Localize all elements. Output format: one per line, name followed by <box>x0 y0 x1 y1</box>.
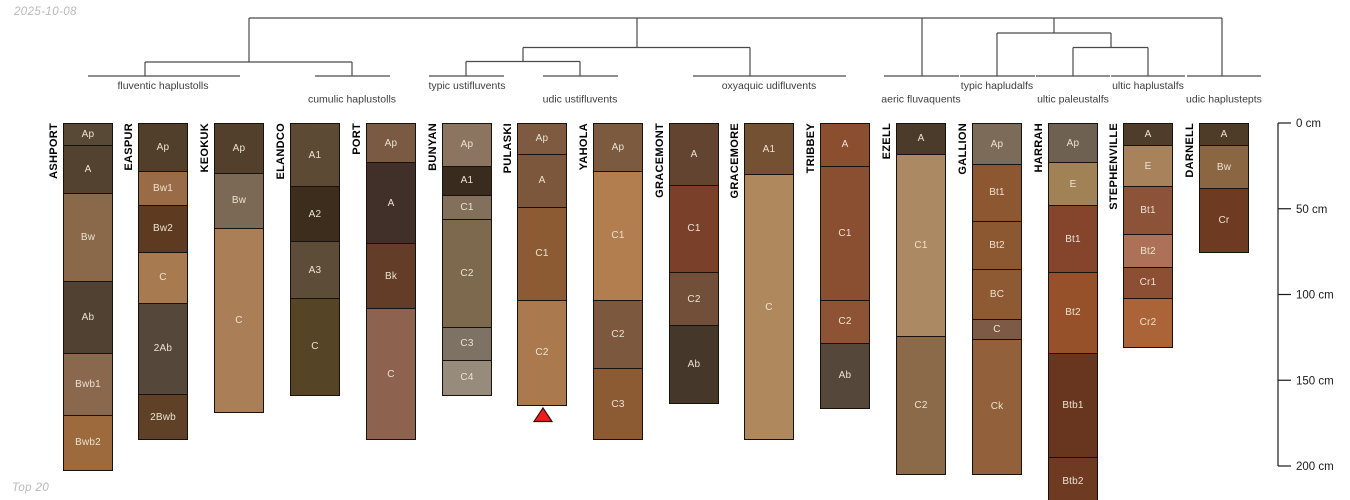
horizon-keokuk-bw: Bw <box>214 173 264 228</box>
series-label-stephenville: STEPHENVILLE <box>1107 123 1121 243</box>
horizon-gracemont-c1: C1 <box>669 185 719 272</box>
horizon-yahola-ap: Ap <box>593 123 643 171</box>
footer-label: Top 20 <box>12 482 49 494</box>
horizon-darnell-cr: Cr <box>1199 188 1249 253</box>
horizon-elandco-a2: A2 <box>290 186 340 241</box>
horizon-pulaski-c2: C2 <box>517 300 567 406</box>
horizon-harrah-bt2: Bt2 <box>1048 272 1098 353</box>
horizon-ashport-ab: Ab <box>63 281 113 353</box>
horizon-bunyan-c4: C4 <box>442 360 492 396</box>
horizon-tribbey-ab: Ab <box>820 343 870 410</box>
horizon-elandco-a3: A3 <box>290 241 340 298</box>
profile-column-keokuk: ApBwC <box>214 123 264 413</box>
profile-column-pulaski: ApAC1C2 <box>517 123 567 406</box>
horizon-harrah-e: E <box>1048 162 1098 205</box>
profile-column-gallion: ApBt1Bt2BCCCk <box>972 123 1022 475</box>
horizon-elandco-c: C <box>290 298 340 396</box>
horizon-harrah-btb2: Btb2 <box>1048 457 1098 500</box>
horizon-yahola-c1: C1 <box>593 171 643 300</box>
horizon-bunyan-c3: C3 <box>442 327 492 360</box>
horizon-pulaski-c1: C1 <box>517 207 567 300</box>
horizon-yahola-c2: C2 <box>593 300 643 369</box>
group-label: aeric fluvaquents <box>881 94 960 106</box>
depth-axis-label: 150 cm <box>1296 375 1334 387</box>
horizon-bunyan-c2: C2 <box>442 219 492 327</box>
horizon-gallion-bt1: Bt1 <box>972 164 1022 221</box>
horizon-gallion-bc: BC <box>972 269 1022 319</box>
horizon-ashport-ap: Ap <box>63 123 113 145</box>
series-label-elandco: ELANDCO <box>274 123 288 243</box>
horizon-harrah-ap: Ap <box>1048 123 1098 162</box>
group-label: typic ustifluvents <box>428 80 505 92</box>
horizon-easpur-ap: Ap <box>138 123 188 171</box>
horizon-bunyan-a1: A1 <box>442 166 492 195</box>
horizon-yahola-c3: C3 <box>593 368 643 440</box>
series-label-keokuk: KEOKUK <box>198 123 212 243</box>
profile-column-easpur: ApBw1Bw2C2Ab2Bwb <box>138 123 188 440</box>
depth-axis-label: 50 cm <box>1296 204 1327 216</box>
horizon-pulaski-ap: Ap <box>517 123 567 154</box>
series-label-pulaski: PULASKI <box>501 123 515 243</box>
horizon-gracemont-c2: C2 <box>669 272 719 325</box>
horizon-stephenville-cr1: Cr1 <box>1123 267 1173 298</box>
series-label-yahola: YAHOLA <box>577 123 591 243</box>
profile-column-gracemont: AC1C2Ab <box>669 123 719 404</box>
horizon-keokuk-ap: Ap <box>214 123 264 173</box>
horizon-stephenville-bt1: Bt1 <box>1123 186 1173 234</box>
series-label-bunyan: BUNYAN <box>426 123 440 243</box>
profile-column-gracemore: A1C <box>744 123 794 440</box>
series-label-harrah: HARRAH <box>1032 123 1046 243</box>
horizon-stephenville-cr2: Cr2 <box>1123 298 1173 348</box>
horizon-gallion-c: C <box>972 319 1022 340</box>
horizon-bunyan-c1: C1 <box>442 195 492 219</box>
depth-axis-label: 0 cm <box>1296 118 1321 130</box>
profile-column-darnell: ABwCr <box>1199 123 1249 253</box>
horizon-easpur-2bwb: 2Bwb <box>138 394 188 440</box>
horizon-port-ap: Ap <box>366 123 416 162</box>
horizon-keokuk-c: C <box>214 228 264 413</box>
horizon-easpur-bw1: Bw1 <box>138 171 188 205</box>
horizon-port-bk: Bk <box>366 243 416 308</box>
series-label-gracemont: GRACEMONT <box>653 123 667 243</box>
profile-column-ezell: AC1C2 <box>896 123 946 475</box>
profile-column-elandco: A1A2A3C <box>290 123 340 396</box>
horizon-elandco-a1: A1 <box>290 123 340 186</box>
horizon-ezell-a: A <box>896 123 946 154</box>
profile-column-tribbey: AC1C2Ab <box>820 123 870 409</box>
group-label: cumulic haplustolls <box>308 94 396 106</box>
series-label-easpur: EASPUR <box>122 123 136 243</box>
horizon-bunyan-ap: Ap <box>442 123 492 166</box>
horizon-ashport-bwb1: Bwb1 <box>63 353 113 415</box>
profile-column-harrah: ApEBt1Bt2Btb1Btb2 <box>1048 123 1098 500</box>
horizon-tribbey-a: A <box>820 123 870 166</box>
series-label-gracemore: GRACEMORE <box>728 123 742 243</box>
horizon-gracemore-c: C <box>744 174 794 440</box>
horizon-stephenville-e: E <box>1123 145 1173 186</box>
horizon-harrah-bt1: Bt1 <box>1048 205 1098 272</box>
group-label: ultic paleustalfs <box>1037 94 1109 106</box>
profile-column-yahola: ApC1C2C3 <box>593 123 643 440</box>
series-label-ezell: EZELL <box>880 123 894 243</box>
horizon-ezell-c1: C1 <box>896 154 946 336</box>
horizon-darnell-bw: Bw <box>1199 145 1249 188</box>
horizon-easpur-c: C <box>138 252 188 303</box>
group-label: typic hapludalfs <box>961 80 1033 92</box>
horizon-gracemore-a1: A1 <box>744 123 794 174</box>
horizon-darnell-a: A <box>1199 123 1249 145</box>
horizon-gallion-ap: Ap <box>972 123 1022 164</box>
horizon-stephenville-a: A <box>1123 123 1173 145</box>
group-label: udic haplustepts <box>1186 94 1262 106</box>
horizon-tribbey-c1: C1 <box>820 166 870 300</box>
series-label-port: PORT <box>350 123 364 243</box>
horizon-ezell-c2: C2 <box>896 336 946 475</box>
profile-column-stephenville: AEBt1Bt2Cr1Cr2 <box>1123 123 1173 348</box>
depth-axis-label: 100 cm <box>1296 290 1334 302</box>
group-label: fluventic haplustolls <box>117 80 208 92</box>
horizon-ashport-bwb2: Bwb2 <box>63 415 113 472</box>
group-label: udic ustifluvents <box>543 94 618 106</box>
horizon-easpur-bw2: Bw2 <box>138 205 188 251</box>
selection-marker-triangle <box>534 408 552 422</box>
horizon-ashport-bw: Bw <box>63 193 113 280</box>
series-label-gallion: GALLION <box>956 123 970 243</box>
date-label: 2025-10-08 <box>14 6 77 18</box>
horizon-harrah-btb1: Btb1 <box>1048 353 1098 458</box>
horizon-tribbey-c2: C2 <box>820 300 870 343</box>
horizon-easpur-2ab: 2Ab <box>138 303 188 394</box>
group-label: oxyaquic udifluvents <box>722 80 817 92</box>
series-label-tribbey: TRIBBEY <box>804 123 818 243</box>
horizon-gallion-ck: Ck <box>972 339 1022 474</box>
horizon-ashport-a: A <box>63 145 113 193</box>
horizon-gallion-bt2: Bt2 <box>972 221 1022 269</box>
series-label-darnell: DARNELL <box>1183 123 1197 243</box>
depth-axis-label: 200 cm <box>1296 461 1334 473</box>
horizon-pulaski-a: A <box>517 154 567 207</box>
horizon-stephenville-bt2: Bt2 <box>1123 234 1173 267</box>
horizon-gracemont-a: A <box>669 123 719 185</box>
group-label: ultic haplustalfs <box>1112 80 1184 92</box>
soil-profile-chart: fluventic haplustollscumulic haplustolls… <box>0 0 1350 500</box>
profile-column-ashport: ApABwAbBwb1Bwb2 <box>63 123 113 471</box>
profile-column-port: ApABkC <box>366 123 416 440</box>
horizon-port-c: C <box>366 308 416 440</box>
horizon-port-a: A <box>366 162 416 243</box>
horizon-gracemont-ab: Ab <box>669 325 719 404</box>
series-label-ashport: ASHPORT <box>47 123 61 243</box>
profile-column-bunyan: ApA1C1C2C3C4 <box>442 123 492 396</box>
